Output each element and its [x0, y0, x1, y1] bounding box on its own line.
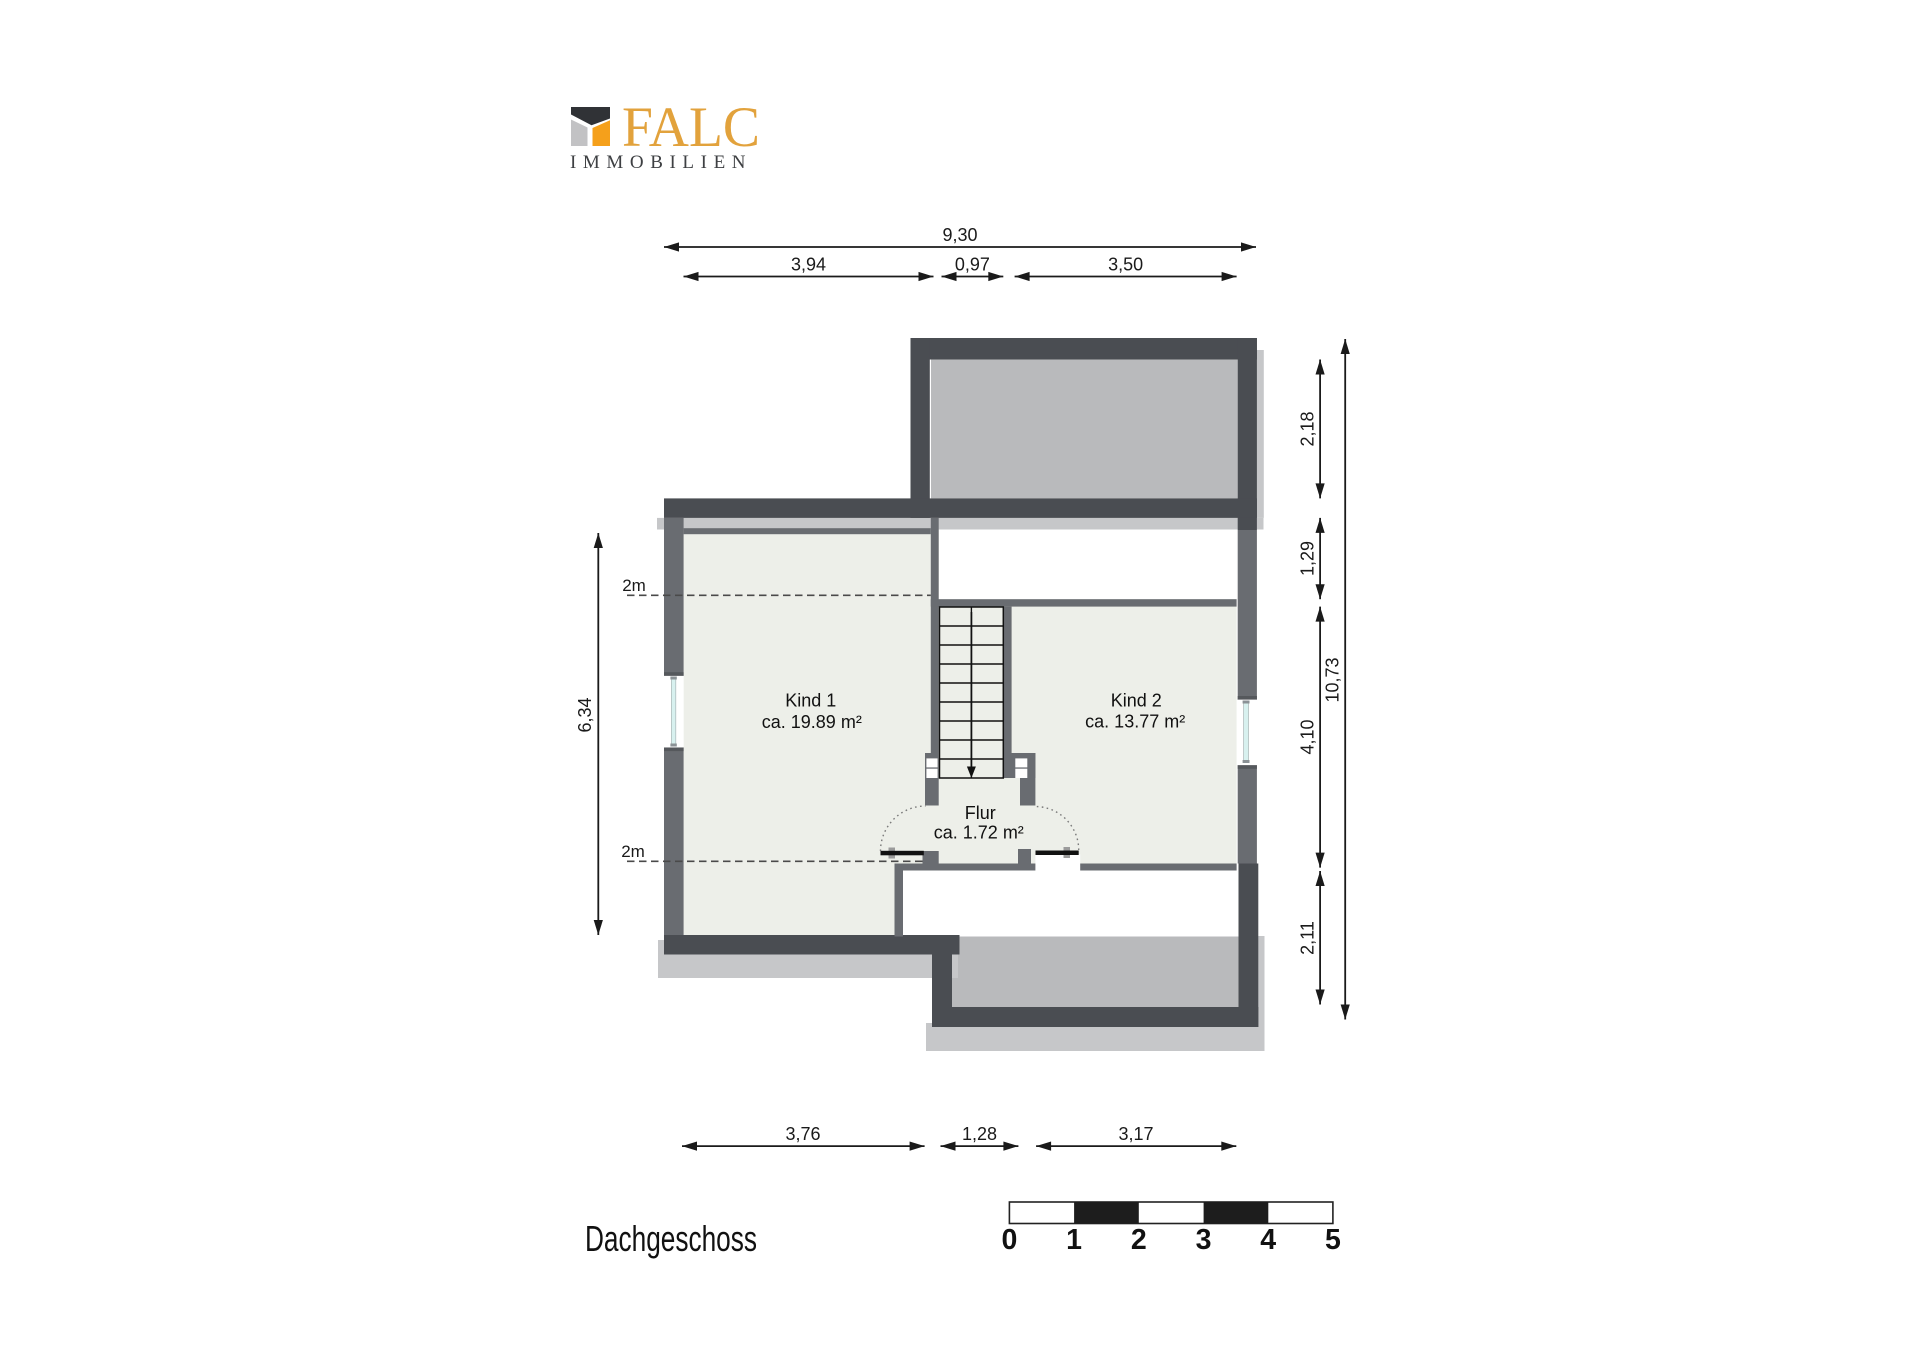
svg-text:1: 1	[1066, 1224, 1082, 1256]
svg-text:4: 4	[1260, 1224, 1276, 1256]
svg-text:1,29: 1,29	[1298, 541, 1318, 576]
svg-text:IMMOBILIEN: IMMOBILIEN	[570, 152, 752, 173]
svg-text:2: 2	[1131, 1224, 1147, 1256]
svg-text:0: 0	[1001, 1224, 1017, 1256]
svg-text:ca. 19.89 m²: ca. 19.89 m²	[762, 712, 862, 732]
svg-text:Flur: Flur	[965, 803, 996, 823]
svg-text:3,94: 3,94	[791, 255, 826, 275]
svg-text:3,17: 3,17	[1118, 1124, 1153, 1144]
svg-text:2m: 2m	[621, 842, 645, 861]
svg-text:9,30: 9,30	[942, 225, 977, 245]
svg-text:2m: 2m	[622, 576, 646, 595]
svg-text:1,28: 1,28	[962, 1124, 997, 1144]
svg-text:2,11: 2,11	[1298, 921, 1318, 955]
svg-text:Kind 1: Kind 1	[785, 691, 836, 711]
svg-text:3,50: 3,50	[1108, 255, 1143, 275]
svg-text:10,73: 10,73	[1323, 657, 1343, 702]
svg-text:FALC: FALC	[622, 96, 760, 159]
svg-text:3: 3	[1196, 1224, 1212, 1256]
svg-text:4,10: 4,10	[1298, 719, 1318, 754]
svg-text:6,34: 6,34	[575, 697, 595, 732]
svg-text:0,97: 0,97	[955, 255, 990, 275]
svg-text:ca. 1.72 m²: ca. 1.72 m²	[934, 823, 1024, 843]
svg-text:Kind 2: Kind 2	[1111, 691, 1162, 711]
svg-text:2,18: 2,18	[1298, 411, 1318, 446]
svg-text:5: 5	[1325, 1224, 1341, 1256]
svg-text:3,76: 3,76	[785, 1124, 820, 1144]
svg-text:ca. 13.77 m²: ca. 13.77 m²	[1085, 712, 1185, 732]
svg-text:Dachgeschoss: Dachgeschoss	[585, 1218, 757, 1259]
